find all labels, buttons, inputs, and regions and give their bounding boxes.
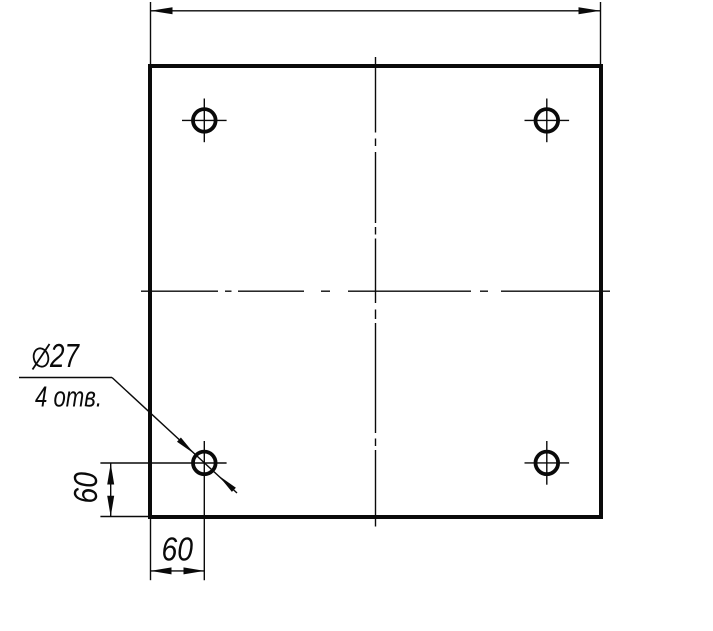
svg-text:60: 60 bbox=[162, 532, 194, 569]
svg-text:27: 27 bbox=[49, 338, 80, 375]
svg-text:60: 60 bbox=[68, 472, 105, 504]
svg-text:4 отв.: 4 отв. bbox=[35, 382, 102, 414]
